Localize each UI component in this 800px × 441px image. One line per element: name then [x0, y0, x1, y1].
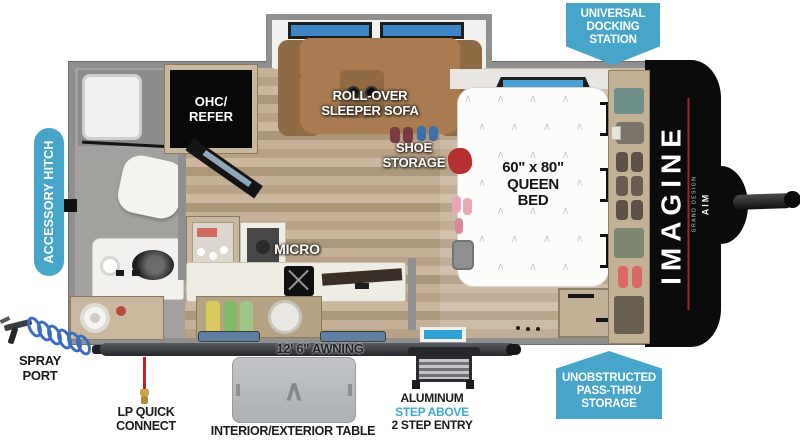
floor-dot	[536, 327, 540, 331]
bed-label: 60" x 80" QUEEN BED	[458, 160, 608, 210]
wardrobe-tag	[611, 126, 621, 140]
table-logo-glyph: ∧	[232, 357, 356, 423]
slideout-window-right	[380, 22, 464, 39]
pink-roll	[455, 218, 463, 234]
lp-connector-tip-icon	[141, 396, 148, 404]
floor-dot	[526, 327, 530, 331]
red-knob	[116, 306, 126, 316]
brand-maker-text: GRAND DESIGN	[692, 74, 698, 334]
awning-label: 12' 6" AWNING	[245, 341, 395, 356]
floor-mat	[452, 240, 474, 270]
lp-connector-icon	[140, 389, 149, 396]
accessory-hitch-badge: ACCESSORY HITCH	[34, 128, 64, 276]
dish-light-green	[240, 301, 253, 331]
shower-pan	[82, 74, 142, 140]
bed-pattern: ∧ ∧ ∧ ∧	[464, 92, 608, 105]
aluminum-step	[416, 356, 472, 382]
hitch-coupler-icon	[784, 191, 800, 208]
wardrobe-shoe-icon	[631, 152, 643, 172]
wardrobe-green-clothes	[614, 228, 644, 258]
floor-dot	[516, 326, 520, 330]
accessory-hitch-receiver	[63, 199, 77, 212]
flipflop-icon	[463, 198, 472, 215]
shoe-icon	[429, 126, 438, 141]
unobstructed-pass-thru-storage-badge: UNOBSTRUCTED PASS-THRU STORAGE	[556, 351, 662, 419]
dresser-handle	[568, 294, 594, 298]
entry-door-stepwell	[424, 330, 462, 339]
wine-glass-icon	[209, 252, 217, 260]
flipflop-icon	[452, 196, 461, 213]
plate-center	[90, 313, 100, 323]
step-leg	[466, 380, 474, 389]
wardrobe-dark-items	[614, 296, 644, 334]
wardrobe-shoe-icon	[616, 152, 628, 172]
sprayer-nozzle-icon	[0, 316, 10, 324]
wine-glass-icon	[220, 246, 228, 254]
table-label: INTERIOR/EXTERIOR TABLE	[180, 425, 406, 439]
table-latch	[236, 384, 240, 396]
awning-knob	[506, 344, 521, 355]
faucet-icon	[132, 270, 140, 276]
cooktop	[284, 266, 314, 296]
counter-tv-stand	[355, 283, 369, 289]
wardrobe-shoe-icon	[616, 176, 628, 196]
micro-label: MICRO	[257, 242, 337, 257]
universal-docking-station-badge: UNIVERSAL DOCKING STATION	[566, 3, 660, 65]
wine-glass-icon	[197, 248, 205, 256]
sofa-label: ROLL-OVER SLEEPER SOFA	[285, 89, 455, 118]
entry-half-wall	[408, 258, 416, 330]
wardrobe-slipper-icon	[632, 266, 642, 288]
step-top-rail	[408, 347, 480, 356]
slideout-window-left	[288, 22, 372, 39]
dish-green	[224, 301, 237, 331]
table-latch	[348, 384, 352, 396]
bed-pattern: ∧ ∧ ∧ ∧	[464, 260, 608, 273]
pantry-item-red	[197, 228, 217, 237]
bed-window	[503, 80, 583, 88]
wardrobe-shoe-icon	[631, 176, 643, 196]
ohc-refer-label: OHC/ REFER	[170, 70, 252, 148]
step-leg	[412, 380, 420, 389]
faucet-icon	[116, 270, 124, 276]
bath-wall	[178, 150, 186, 280]
wardrobe-slipper-icon	[618, 266, 628, 288]
wardrobe-shoe-icon	[616, 200, 628, 220]
wardrobe-teal-clothes	[614, 88, 644, 114]
step-above-teal-text: STEP ABOVE	[372, 406, 492, 420]
lp-line	[143, 357, 146, 390]
brand-red-rule	[688, 98, 690, 310]
wardrobe-shoe-icon	[631, 200, 643, 220]
dish-yellow	[206, 301, 220, 331]
bed-pattern: ∧ ∧ ∧ ∧	[478, 232, 608, 245]
front-cap-branding: IMAGINE GRAND DESIGN AIM	[646, 60, 722, 347]
floorplan-diagram: IMAGINE GRAND DESIGN AIM OHC/ REFER	[0, 0, 800, 441]
round-sink	[268, 300, 302, 334]
spray-port-label: SPRAY PORT	[0, 353, 80, 383]
shoe-icon	[417, 126, 426, 141]
brand-trim-text: AIM	[701, 74, 711, 334]
brand-model-text: IMAGINE	[658, 74, 686, 334]
bed-pattern: ∧ ∧ ∧ ∧	[478, 120, 608, 133]
